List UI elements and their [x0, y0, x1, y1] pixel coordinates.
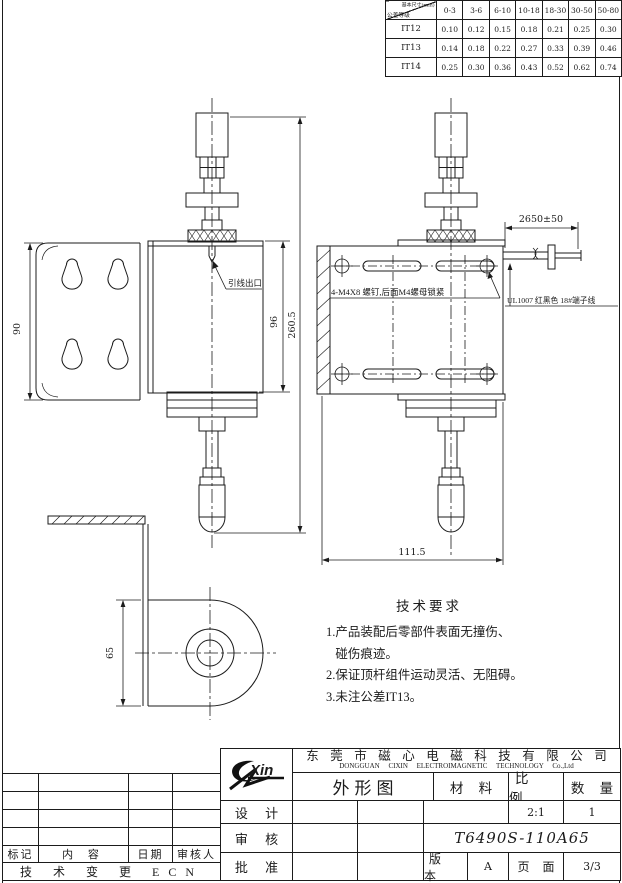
dim-body-height: 96 [269, 316, 280, 328]
grade-label: IT13 [386, 39, 437, 58]
revision-blank-cell [172, 791, 221, 810]
approve-name-cell [292, 852, 358, 881]
label-wire: UL1007 红黑色 18#端子线 [507, 295, 596, 305]
tol-value: 0.10 [437, 20, 463, 39]
revision-col-content: 内 容 [38, 845, 129, 863]
lead-wire [503, 245, 581, 269]
dim-overall-height: 260.5 [287, 311, 298, 338]
review-name-cell [292, 823, 358, 853]
revision-blank-cell [128, 827, 173, 846]
tol-value: 0.36 [489, 58, 515, 77]
material-value-cell [423, 800, 509, 824]
tolerance-table: 基本尺寸(mm) 公差等级 0-3 3-6 6-10 10-18 18-30 3… [385, 0, 622, 77]
revision-col-date: 日期 [128, 845, 173, 863]
tol-value: 0.18 [463, 39, 489, 58]
slots [334, 255, 499, 385]
version-value-cell: A [467, 852, 509, 881]
tol-value: 0.18 [516, 20, 542, 39]
approve-label-cell: 批 准 [220, 852, 293, 881]
size-range: 50-80 [595, 1, 621, 20]
tol-value: 0.22 [489, 39, 515, 58]
tolerance-corner-cell: 基本尺寸(mm) 公差等级 [386, 1, 437, 20]
tol-value: 0.30 [463, 58, 489, 77]
cixin-logo: Xin [226, 755, 288, 795]
tol-value: 0.21 [542, 20, 568, 39]
tech-req-title: 技术要求 [396, 595, 620, 615]
size-range: 10-18 [516, 1, 542, 20]
tol-value: 0.14 [437, 39, 463, 58]
page-value-cell: 3/3 [563, 852, 621, 881]
side-view [317, 98, 581, 555]
design-name-cell [292, 800, 358, 824]
company-cell: 东莞市磁心电磁科技有限公司 DONGGUAN CIXIN ELECTROIMAG… [292, 748, 621, 773]
page-label-cell: 页 面 [508, 852, 564, 881]
tech-req-line: 碰伤痕迹。 [326, 644, 620, 666]
tol-value: 0.52 [542, 58, 568, 77]
mounting-bracket-front [36, 243, 140, 400]
revision-blank-cell [172, 827, 221, 846]
grade-label: IT12 [386, 20, 437, 39]
revision-blank-cell [2, 809, 39, 828]
revision-blank-cell [128, 791, 173, 810]
revision-col-auditor: 审核人 [172, 845, 221, 863]
revision-blank-cell [38, 773, 129, 792]
tech-req-line: 1.产品装配后零部件表面无撞伤、 [326, 622, 620, 644]
revision-blank-cell [2, 791, 39, 810]
tech-req-line: 2.保证顶杆组件运动灵活、无阻碍。 [326, 665, 620, 687]
tol-value: 0.39 [569, 39, 595, 58]
size-range: 0-3 [437, 1, 463, 20]
label-screws: 4-M4X8 螺钉,后面M4螺母锁紧 [331, 287, 444, 297]
qty-value-cell: 1 [563, 800, 621, 824]
design-date-cell [357, 800, 424, 824]
revision-blank-cell [128, 809, 173, 828]
size-range: 3-6 [463, 1, 489, 20]
logo-text: Xin [249, 762, 273, 779]
revision-blank-cell [172, 809, 221, 828]
approve-date-cell [357, 852, 424, 881]
bracket-edge-strip [317, 246, 330, 394]
revision-blank-cell [38, 791, 129, 810]
revision-col-mark: 标记 [2, 845, 39, 863]
revision-blank-cell [2, 827, 39, 846]
dim-bracket-height: 90 [12, 323, 23, 335]
scale-value-cell: 2:1 [508, 800, 564, 824]
size-range: 30-50 [569, 1, 595, 20]
logo-cell: Xin [220, 748, 293, 801]
tol-value: 0.12 [463, 20, 489, 39]
tol-value: 0.43 [516, 58, 542, 77]
dim-body-width: 111.5 [398, 547, 425, 558]
tol-value: 0.46 [595, 39, 621, 58]
z-bracket-flange [48, 516, 145, 524]
review-label-cell: 审 核 [220, 823, 293, 853]
grade-label: IT14 [386, 58, 437, 77]
drawing-type-cell: 外形图 [292, 772, 434, 801]
scale-label-cell: 比 例 [508, 772, 564, 801]
leader-labels: 引线出口 4-M4X8 螺钉,后面M4螺母锁紧 UL1007 红黑色 18#端子… [213, 261, 619, 306]
review-date-cell [357, 823, 424, 853]
size-range: 18-30 [542, 1, 568, 20]
tol-value: 0.25 [437, 58, 463, 77]
revision-blank-cell [2, 773, 39, 792]
front-view [36, 98, 263, 548]
revision-blank-cell [38, 827, 129, 846]
part-number-cell: T6490S-110A65 [423, 823, 621, 853]
revision-footer-ecn: 技 术 变 更 ECN [2, 862, 221, 881]
drawing-sheet: 90 96 260.5 2650±50 111.5 [0, 0, 622, 883]
revision-blank-cell [172, 773, 221, 792]
tech-req-line: 3.未注公差IT13。 [326, 687, 620, 709]
keyhole-slots [62, 259, 128, 369]
corner-bottom-label: 公差等级 [387, 10, 410, 19]
tol-value: 0.33 [542, 39, 568, 58]
screws [331, 255, 498, 385]
corner-top-label: 基本尺寸(mm) [402, 1, 435, 8]
tol-value: 0.62 [569, 58, 595, 77]
version-label-cell: 版 本 [423, 852, 468, 881]
label-lead-exit: 引线出口 [228, 278, 262, 288]
design-label-cell: 设 计 [220, 800, 293, 824]
tol-value: 0.74 [595, 58, 621, 77]
z-bracket-view [48, 516, 276, 720]
dim-wire-length: 2650±50 [519, 214, 563, 225]
revision-blank-cell [38, 809, 129, 828]
size-range: 6-10 [489, 1, 515, 20]
side-body [330, 246, 503, 394]
tol-value: 0.30 [595, 20, 621, 39]
front-body [148, 241, 263, 393]
material-label-cell: 材 料 [433, 772, 509, 801]
tol-value: 0.15 [489, 20, 515, 39]
revision-blank-cell [128, 773, 173, 792]
tol-value: 0.27 [516, 39, 542, 58]
technical-requirements: 技术要求 1.产品装配后零部件表面无撞伤、 碰伤痕迹。 2.保证顶杆组件运动灵活… [326, 595, 620, 708]
qty-label-cell: 数 量 [563, 772, 621, 801]
dim-plate-height: 65 [105, 647, 116, 659]
tol-value: 0.25 [569, 20, 595, 39]
